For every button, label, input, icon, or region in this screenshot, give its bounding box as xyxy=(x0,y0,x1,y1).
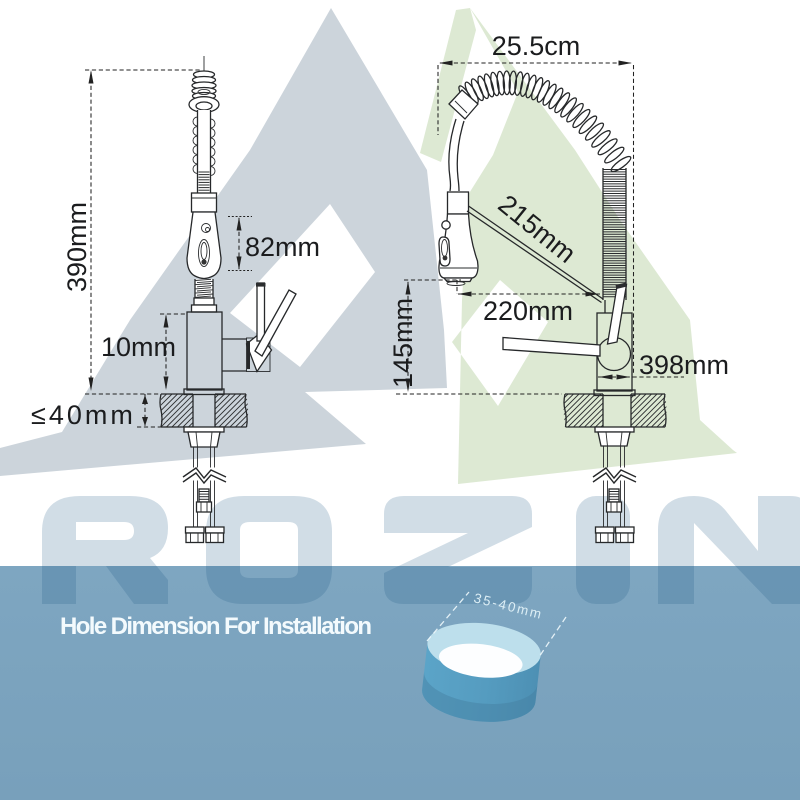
svg-text:10mm: 10mm xyxy=(101,332,176,362)
svg-text:82mm: 82mm xyxy=(245,232,320,262)
svg-text:Hole Dimension For Installatio: Hole Dimension For Installation xyxy=(60,613,371,640)
svg-text:398mm: 398mm xyxy=(639,350,729,380)
svg-text:≤40mm: ≤40mm xyxy=(31,400,136,430)
svg-text:145mm: 145mm xyxy=(388,298,418,388)
svg-text:25.5cm: 25.5cm xyxy=(492,31,581,61)
svg-text:220mm: 220mm xyxy=(483,296,573,326)
svg-text:390mm: 390mm xyxy=(62,202,92,292)
